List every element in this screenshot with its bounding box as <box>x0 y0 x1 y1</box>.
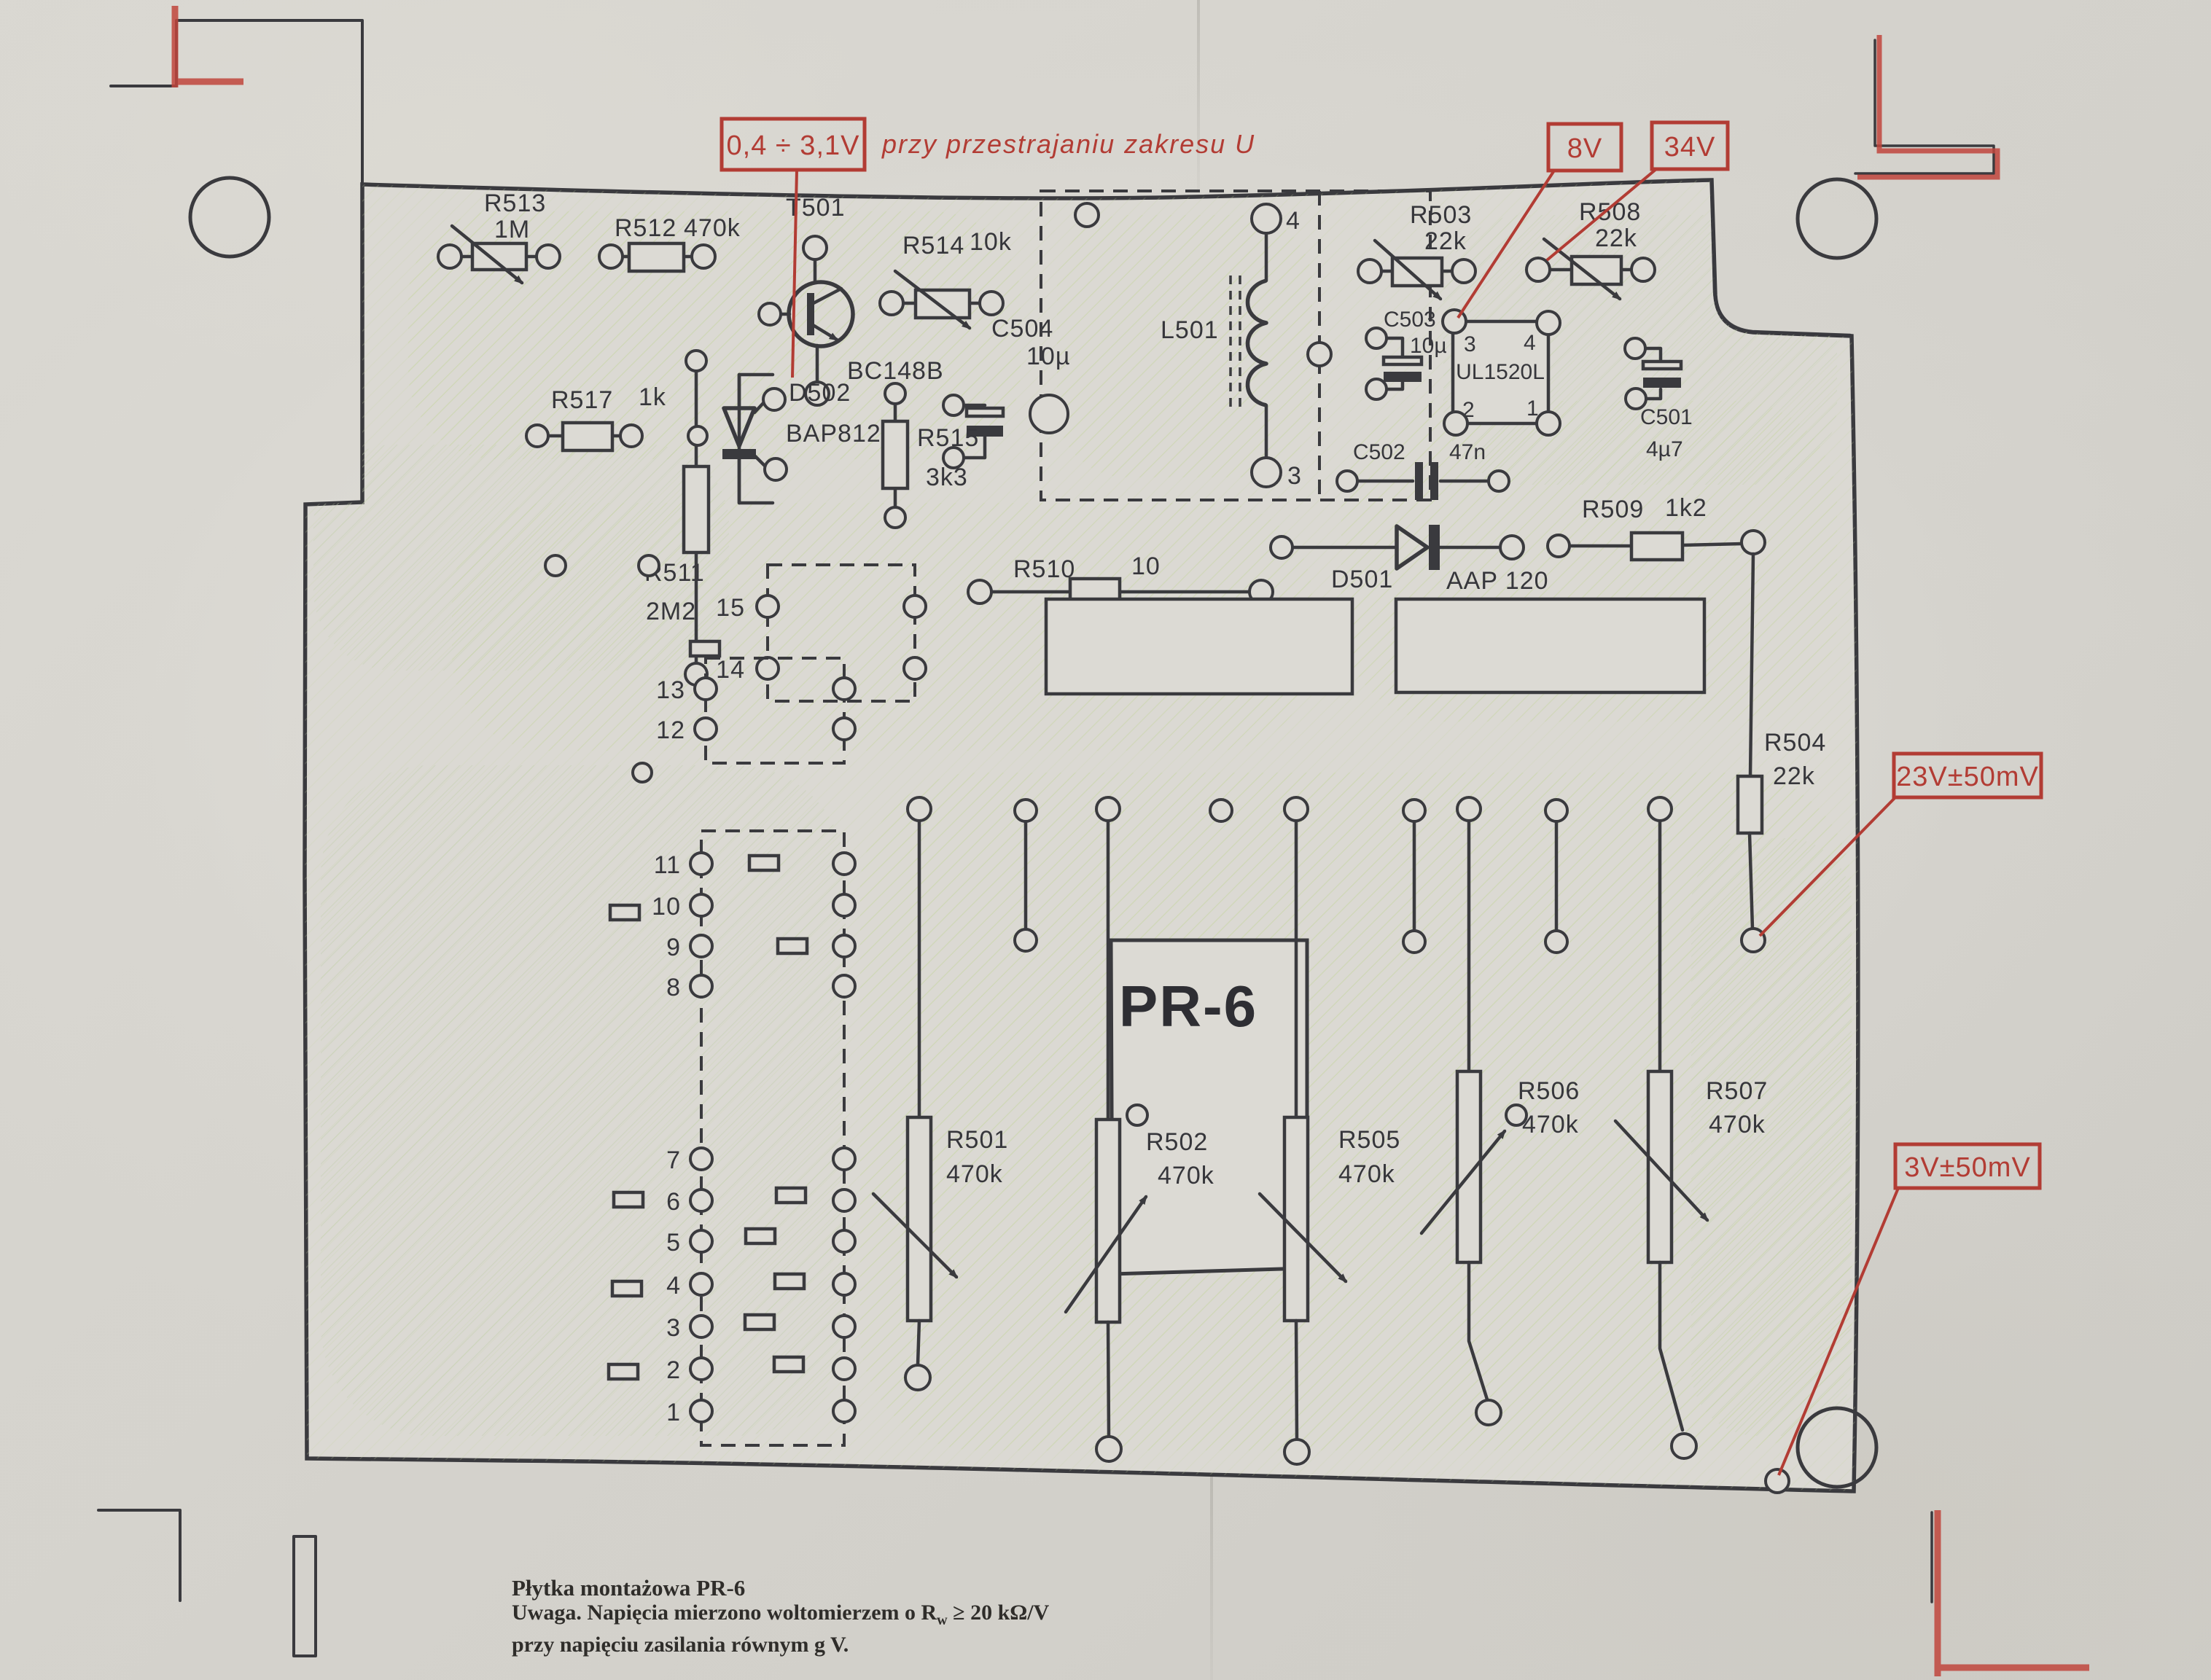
component-c504-ref: C504 <box>991 315 1053 343</box>
ic-pin4: 4 <box>1524 331 1536 355</box>
component-r501-ref: R501 <box>946 1126 1008 1154</box>
component-l501-ref: L501 <box>1161 316 1219 344</box>
pad-label-7: 7 <box>666 1146 681 1174</box>
component-d501-ref: D501 <box>1331 566 1393 593</box>
component-r510-value: 10 <box>1131 552 1161 580</box>
pad-label-4: 4 <box>666 1272 681 1300</box>
component-d502-ref: D502 <box>789 379 851 407</box>
pad <box>692 245 715 268</box>
pad-label-5: 5 <box>666 1229 681 1257</box>
pad <box>1548 535 1569 557</box>
pad <box>1742 929 1765 952</box>
ic-pin1: 1 <box>1526 396 1539 421</box>
component-outline-box <box>1046 599 1352 694</box>
ic-pin3: 3 <box>1464 332 1476 356</box>
component-r501-value: 470k <box>946 1160 1003 1188</box>
component-r514-value: 10k <box>970 228 1012 256</box>
pad <box>688 426 707 445</box>
crop-mark-top-left-red <box>172 6 243 87</box>
pad <box>1030 395 1068 433</box>
pad <box>968 580 991 603</box>
component-r509-value: 1k2 <box>1665 494 1707 522</box>
component-r505-value: 470k <box>1338 1160 1395 1188</box>
component-c501-ref: C501 <box>1640 405 1693 429</box>
pad <box>885 383 905 404</box>
pad-label-6: 6 <box>666 1188 681 1216</box>
annotation-34v: 34V <box>1664 132 1716 163</box>
pad <box>1452 259 1475 283</box>
component-c504-value: 10µ <box>1026 343 1070 370</box>
pad <box>686 351 706 371</box>
component-r506-ref: R506 <box>1518 1077 1580 1105</box>
crop-mark-bottom-right-red <box>1935 1510 2089 1676</box>
pad <box>1648 797 1672 821</box>
pad <box>1252 204 1281 233</box>
crop-mark-top-right-black <box>1855 40 1994 173</box>
pad <box>833 678 855 700</box>
component-d501-value: AAP 120 <box>1446 567 1549 595</box>
pad <box>885 507 905 528</box>
pad <box>1500 536 1524 559</box>
pad <box>803 236 827 259</box>
component-r515-value: 3k3 <box>926 464 968 491</box>
copper-trace-hatching <box>299 175 1859 1494</box>
pad-label-13: 13 <box>656 676 685 704</box>
component-r504-ref: R504 <box>1764 729 1826 757</box>
pad-label-9: 9 <box>666 934 681 961</box>
pad <box>1742 531 1765 554</box>
l501-pin-top: 4 <box>1286 207 1301 235</box>
pad <box>763 388 785 410</box>
pad-label-12: 12 <box>656 716 685 744</box>
pad <box>438 245 461 268</box>
pad <box>1075 203 1099 227</box>
component-r505-ref: R505 <box>1338 1126 1400 1154</box>
pad <box>1537 412 1560 435</box>
pad <box>1366 379 1387 399</box>
pad <box>1476 1400 1501 1425</box>
pad-13 <box>695 678 717 700</box>
pr6-label: PR-6 <box>1119 974 1257 1039</box>
pad <box>1537 311 1560 335</box>
pad-label-1: 1 <box>666 1399 681 1426</box>
pad <box>1366 328 1387 348</box>
pad <box>1252 458 1281 487</box>
component-ul1520l: UL1520L 3 4 2 1 <box>1443 310 1560 435</box>
annotation-tune-note: przy przestrajaniu zakresu U <box>881 129 1255 159</box>
component-r508-ref: R508 <box>1579 198 1641 226</box>
caption-note-line1: Uwaga. Napięcia mierzono woltomierzem o … <box>512 1601 1049 1633</box>
pad <box>1096 1437 1121 1461</box>
component-r513-ref: R513 <box>484 190 546 217</box>
pad <box>1457 797 1481 821</box>
pad <box>904 595 926 617</box>
pad <box>880 292 903 315</box>
component-c503-ref: C503 <box>1384 308 1436 332</box>
pad <box>599 245 623 268</box>
pad <box>833 718 855 740</box>
component-r512-ref: R512 <box>615 214 676 242</box>
pad <box>1626 388 1646 409</box>
pad-14 <box>757 657 779 679</box>
annotation-3v: 3V±50mV <box>1904 1152 2031 1183</box>
component-r507-value: 470k <box>1709 1111 1766 1138</box>
pad-label-11: 11 <box>654 851 681 879</box>
caption-note-sub: w <box>937 1612 947 1628</box>
pad <box>1284 1439 1309 1464</box>
pad <box>1096 797 1120 821</box>
pad <box>765 458 787 480</box>
component-r509-ref: R509 <box>1582 496 1644 523</box>
pad <box>1308 343 1331 366</box>
mounting-hole <box>1798 179 1876 258</box>
pad <box>980 292 1003 315</box>
caption-block: Płytka montażowa PR-6 Uwaga. Napięcia mi… <box>512 1576 1049 1657</box>
pad <box>545 555 566 576</box>
pad <box>1672 1434 1696 1458</box>
pad <box>526 425 548 447</box>
component-r515-ref: R515 <box>917 424 979 452</box>
component-r517-ref: R517 <box>551 386 613 414</box>
pad <box>943 395 964 415</box>
pcb-assembly-drawing: R513 1M R512 470k T501 BC148B R514 10k <box>0 0 2211 1680</box>
component-r503-value: 22k <box>1424 227 1467 255</box>
pad-label-10: 10 <box>652 893 681 921</box>
crop-mark-top-right-red <box>1857 35 1997 177</box>
pad-label-14: 14 <box>716 656 745 684</box>
caption-title: Płytka montażowa PR-6 <box>512 1576 1049 1601</box>
pad-label-15: 15 <box>716 594 745 622</box>
component-r517-value: 1k <box>639 383 666 411</box>
component-r503-ref: R503 <box>1410 201 1472 229</box>
component-d502-value: BAP812 <box>786 420 881 448</box>
pad <box>1271 536 1292 558</box>
component-r510-ref: R510 <box>1013 555 1075 583</box>
component-r514-ref: R514 <box>902 232 964 259</box>
component-r512-value: 470k <box>684 214 741 242</box>
pad-3v-test-point <box>1766 1469 1789 1493</box>
pad <box>904 657 926 679</box>
pad-label-2: 2 <box>666 1356 681 1384</box>
crop-mark-top-left-black <box>111 20 362 182</box>
pad <box>1631 258 1655 281</box>
pad <box>1489 471 1509 491</box>
component-t501-type: BC148B <box>847 357 944 385</box>
pad <box>1337 471 1357 491</box>
pad <box>1625 338 1645 359</box>
pad-label-3: 3 <box>666 1314 681 1342</box>
pad <box>905 1365 930 1390</box>
pad <box>537 245 560 268</box>
pad-label-8: 8 <box>666 974 681 1001</box>
component-r506-value: 470k <box>1522 1111 1579 1138</box>
component-r507-ref: R507 <box>1706 1077 1768 1105</box>
caption-note-b: ≥ 20 kΩ/V <box>948 1601 1050 1625</box>
mounting-hole <box>190 178 269 257</box>
pad-12 <box>695 718 717 740</box>
crop-mark-bottom-left-black <box>98 1510 180 1601</box>
annotation-8v: 8V <box>1567 133 1602 164</box>
caption-note-line2: przy napięciu zasilania równym g V. <box>512 1633 1049 1657</box>
component-ul1520l-ref: UL1520L <box>1456 360 1545 384</box>
caption-note-a: Uwaga. Napięcia mierzono woltomierzem o … <box>512 1601 937 1625</box>
component-r513-value: 1M <box>494 216 530 243</box>
pad <box>639 555 659 576</box>
pad-15 <box>757 595 779 617</box>
pad <box>908 797 931 821</box>
pad <box>759 303 781 325</box>
component-r508-value: 22k <box>1595 224 1637 252</box>
crop-mark-bottom-left-bar <box>294 1536 316 1656</box>
pad <box>620 425 642 447</box>
pad <box>633 763 652 782</box>
component-r502-value: 470k <box>1158 1162 1214 1189</box>
pad <box>1284 797 1308 821</box>
annotation-23v: 23V±50mV <box>1896 762 2039 792</box>
pad <box>1358 259 1381 283</box>
pad <box>1444 412 1467 435</box>
component-r504-value: 22k <box>1773 762 1815 790</box>
component-r502-ref: R502 <box>1146 1128 1208 1156</box>
pad <box>1526 258 1550 281</box>
component-c503-value: 10µ <box>1410 334 1447 358</box>
component-c502-value: 47n <box>1449 440 1486 464</box>
hatch-blob <box>1057 215 1312 477</box>
component-c501-value: 4µ7 <box>1646 437 1683 461</box>
component-r511-value: 2M2 <box>646 598 696 625</box>
l501-pin-bottom: 3 <box>1287 462 1302 490</box>
annotation-tune-range: 0,4 ÷ 3,1V <box>727 130 860 161</box>
component-c502-ref: C502 <box>1353 440 1405 464</box>
component-outline-box <box>1396 599 1704 692</box>
